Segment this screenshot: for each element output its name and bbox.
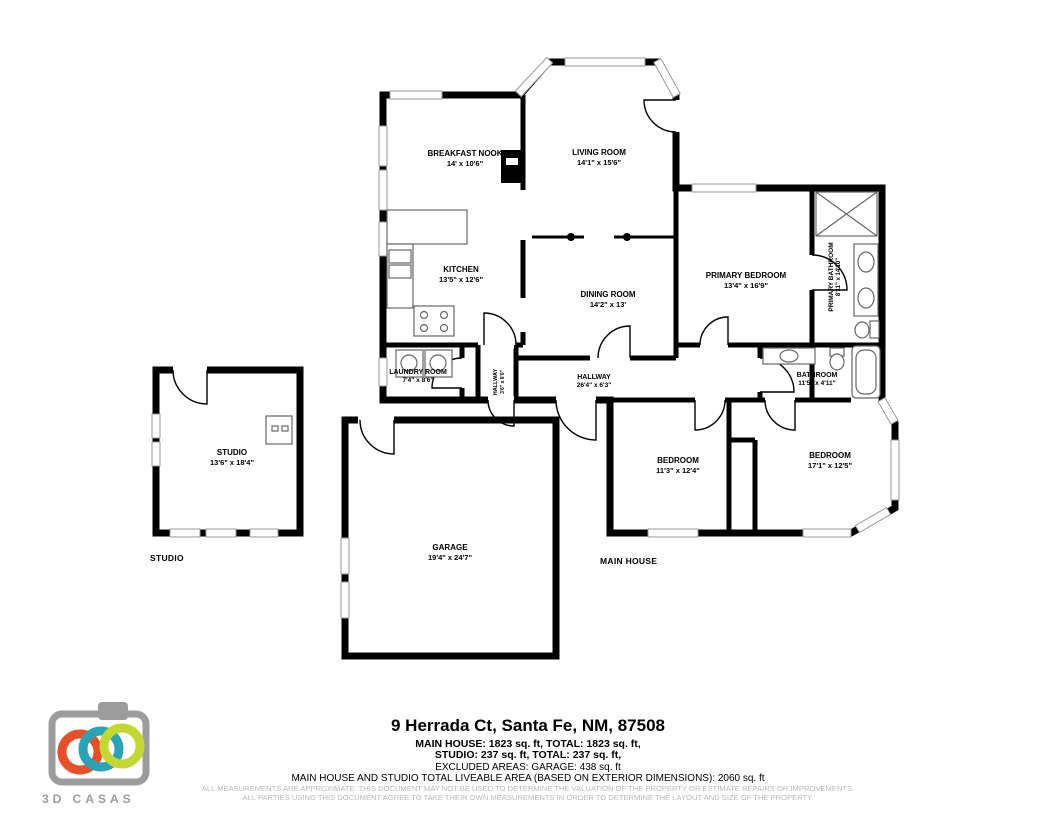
room-label-living-room: LIVING ROOM 14'1" x 15'6" <box>572 148 626 168</box>
stove <box>414 306 454 336</box>
floorplan-page: BREAKFAST NOOK 14' x 10'6" LIVING ROOM 1… <box>0 0 1056 816</box>
room-label-studio: STUDIO 13'6" x 18'4" <box>210 448 254 468</box>
entry-door-arc <box>644 100 676 132</box>
studio-area-label: STUDIO <box>150 553 184 563</box>
front-door-arc <box>556 400 596 440</box>
room-label-kitchen: KITCHEN 13'5" x 12'6" <box>439 265 483 285</box>
room-label-garage: GARAGE 19'4" x 24'7" <box>428 543 472 563</box>
kitchen-stub-door-arc <box>484 313 516 345</box>
kitchen-counter <box>387 210 467 244</box>
room-label-hallway: HALLWAY 26'4" x 6'3" <box>577 373 612 391</box>
studio-door-arc <box>173 370 207 404</box>
camera-rings-icon <box>40 700 160 792</box>
garage-door-arc <box>360 420 394 454</box>
fireplace <box>501 150 523 183</box>
room-label-primary-bedroom: PRIMARY BEDROOM 13'4" x 16'9" <box>706 271 786 291</box>
fixtures <box>266 192 880 444</box>
room-label-laundry-room: LAUNDRY ROOM 7'4" x 8'6" <box>389 368 447 386</box>
bedroom1-door-arc <box>695 400 725 430</box>
kitchen-sink <box>389 250 411 263</box>
dining-door-arc <box>598 326 630 358</box>
garage-walls <box>345 420 556 656</box>
room-label-dining-room: DINING ROOM 14'2" x 13' <box>580 290 635 310</box>
room-label-hallway-small: HALLWAY 3'6" x 8'0" <box>493 369 507 395</box>
primary-bedroom-door-arc <box>700 317 728 345</box>
bedroom2-door-arc <box>765 400 795 430</box>
room-label-breakfast-nook: BREAKFAST NOOK 14' x 10'6" <box>427 149 502 169</box>
main-house-area-label: MAIN HOUSE <box>600 556 657 566</box>
room-label-primary-bathroom: PRIMARY BATHROOM 8'11" x 14'10" <box>828 242 844 311</box>
logo-text: 3D CASAS <box>42 792 158 806</box>
room-label-bedroom-2: BEDROOM 17'1" x 12'5" <box>808 451 852 471</box>
primary-toilet <box>870 321 879 338</box>
room-label-bedroom-1: BEDROOM 11'3" x 12'4" <box>656 456 700 476</box>
room-label-bathroom: BATHROOM 11'5" x 4'11" <box>797 371 838 389</box>
company-logo: 3D CASAS <box>40 700 160 810</box>
floor-plan-drawing <box>0 0 1056 816</box>
